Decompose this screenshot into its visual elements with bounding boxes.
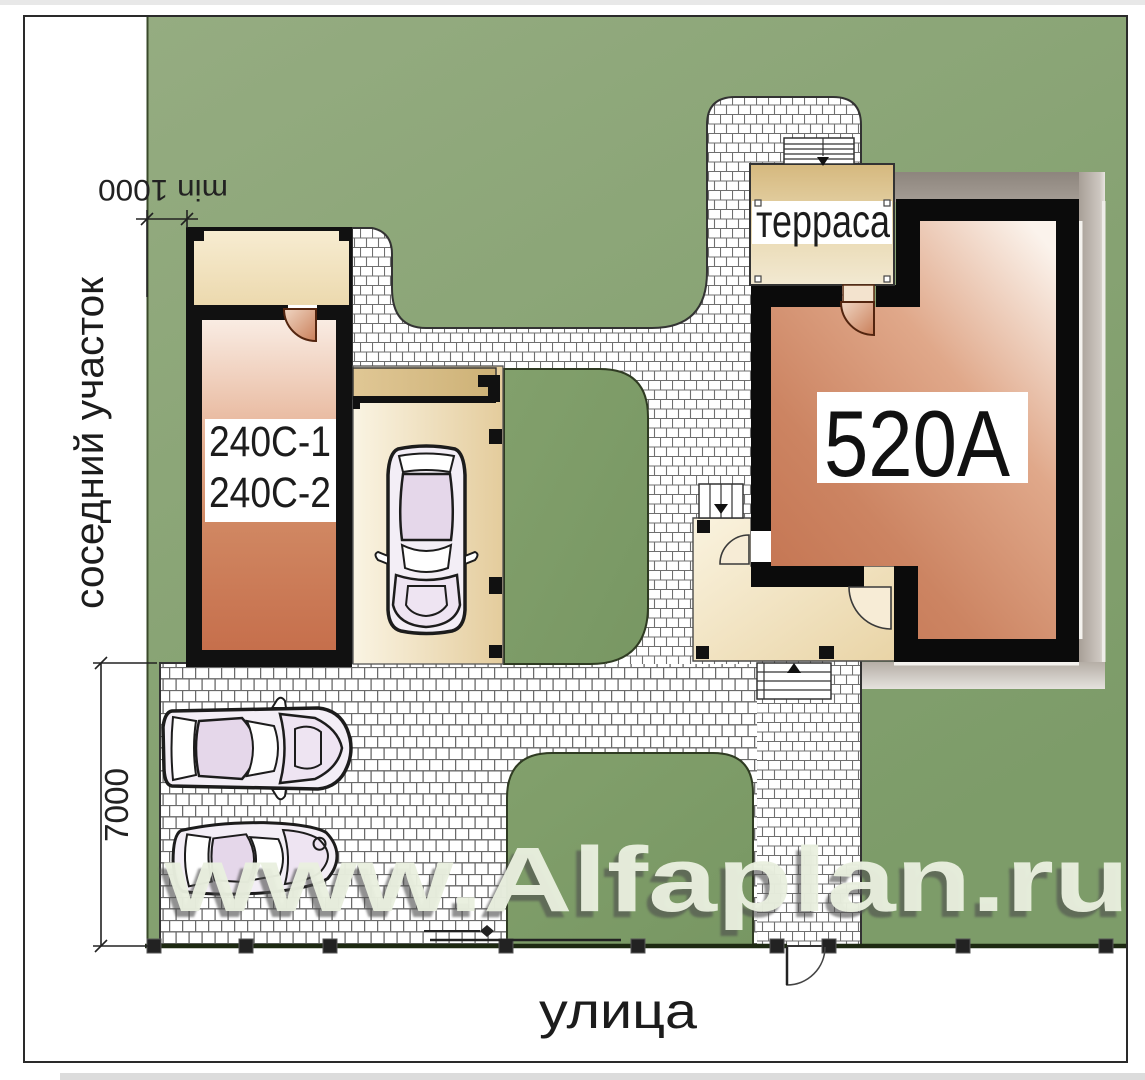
svg-text:www.Alfaplan.ru: www.Alfaplan.ru [163,829,1129,931]
svg-text:терраса: терраса [756,195,890,247]
svg-text:соседний участок: соседний участок [68,276,112,609]
svg-text:7000: 7000 [98,768,135,842]
svg-text:min 1000: min 1000 [98,173,228,206]
svg-text:240C-1: 240C-1 [209,418,331,466]
svg-text:240C-2: 240C-2 [209,469,331,517]
svg-text:520A: 520A [824,391,1010,496]
svg-text:улица: улица [539,983,697,1039]
